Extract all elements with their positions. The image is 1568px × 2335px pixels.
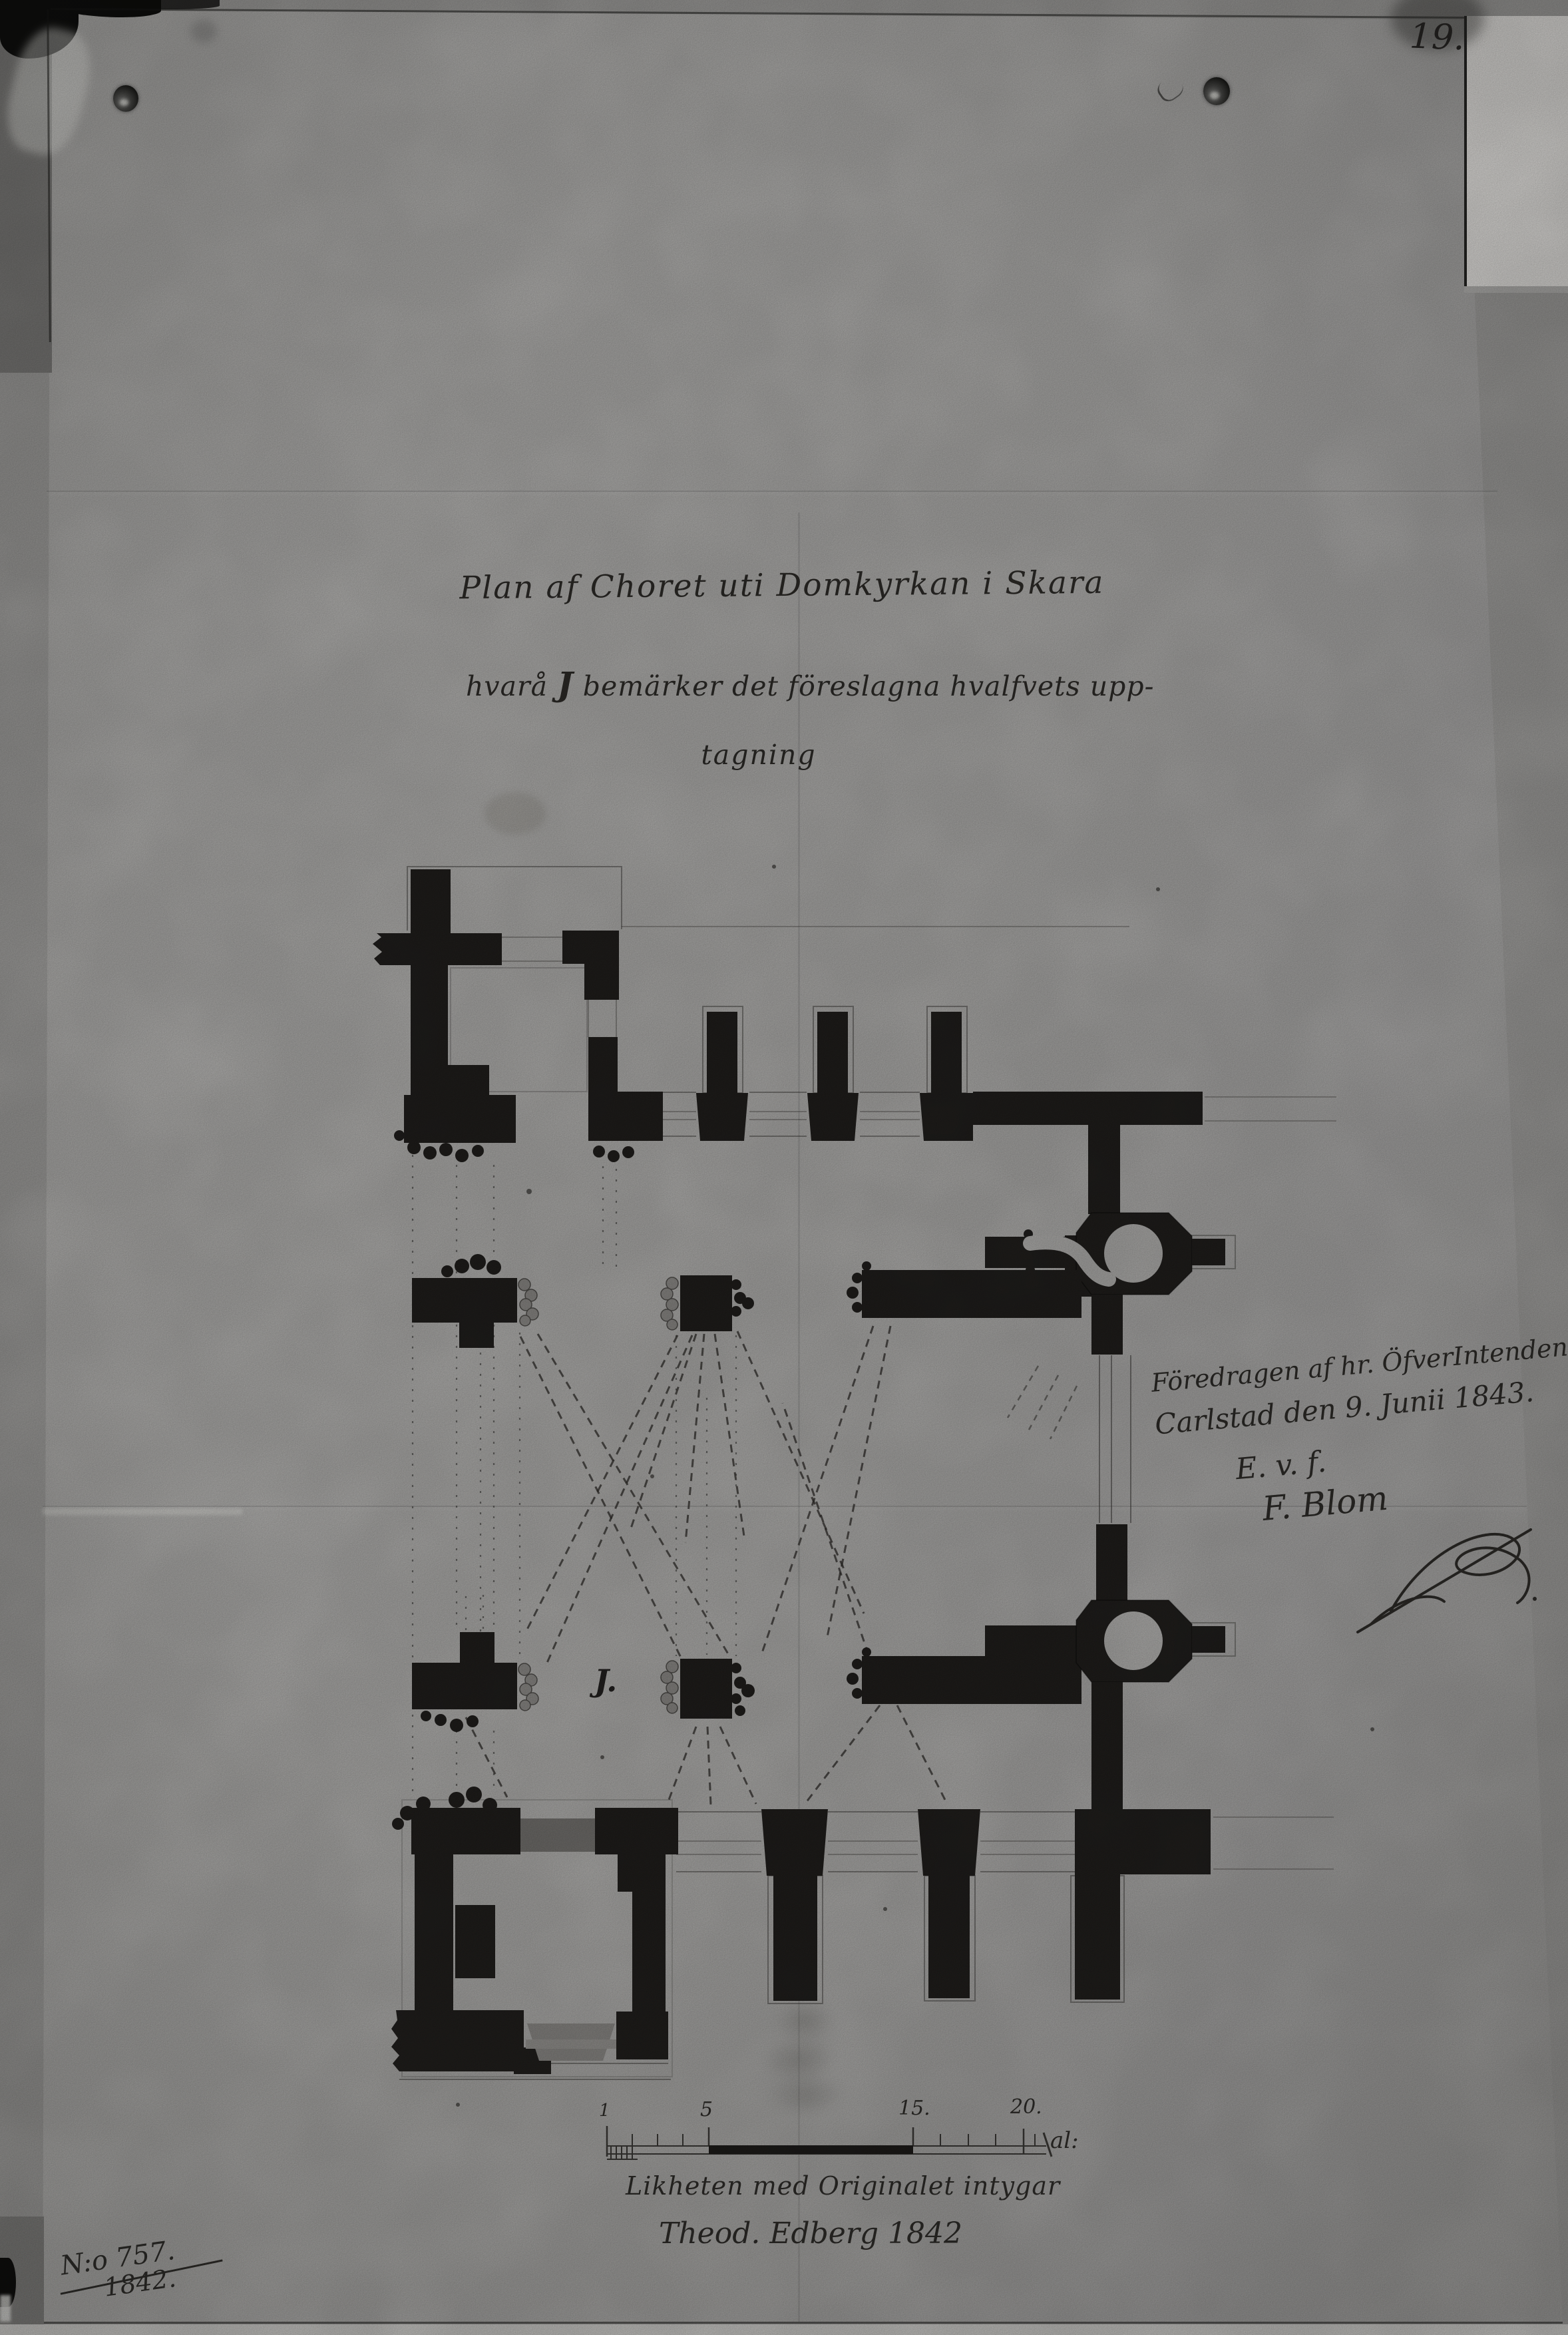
- title-vault-letter: J: [557, 664, 574, 704]
- northwest-chapel: [373, 869, 663, 1162]
- scanned-archive-photo: 19. Plan af Choret uti Domkyrkan i Skara…: [0, 0, 1568, 2335]
- stair-turret-lower: [1076, 1524, 1225, 1810]
- page-number: 19.: [1409, 17, 1466, 59]
- plan-vault-label: J.: [594, 1663, 617, 1699]
- attestation-line-1: Likheten med Originalet intygar: [626, 2171, 1025, 2201]
- title-line-3: tagning: [679, 739, 839, 771]
- turret-hatch-dashes: [1008, 1366, 1077, 1439]
- south-wall: [761, 1783, 1211, 2001]
- scale-label-5: 5: [700, 2098, 713, 2121]
- scale-label-15: 15.: [898, 2097, 930, 2120]
- ink-washes: [520, 1818, 616, 2061]
- scale-bar: [607, 2126, 1052, 2159]
- lower-pier-row: [412, 1625, 1091, 1732]
- attestation-signature: Theod. Edberg 1842: [659, 2217, 952, 2250]
- scale-unit-label: al:: [1050, 2127, 1079, 2154]
- scallop-clusters: [518, 1277, 678, 1713]
- north-wall: [696, 1012, 1203, 1214]
- title-line-2: hvarå J bemärker det föreslagna hvalfvet…: [466, 664, 1065, 704]
- signature-paraph: [1358, 1530, 1537, 1632]
- title-line-2-pre: hvarå: [466, 670, 557, 702]
- title-line-2-post: bemärker det föreslagna hvalfvets upp-: [574, 670, 1155, 702]
- vault-rib-dashes: [466, 1326, 945, 1805]
- title-line-1: Plan af Choret uti Domkyrkan i Skara: [453, 564, 1111, 607]
- scale-label-1: 1: [599, 2101, 610, 2121]
- scale-label-20: 20.: [1010, 2095, 1042, 2119]
- floor-plan: [0, 0, 1568, 2335]
- upper-pier-row: [412, 1254, 1081, 1348]
